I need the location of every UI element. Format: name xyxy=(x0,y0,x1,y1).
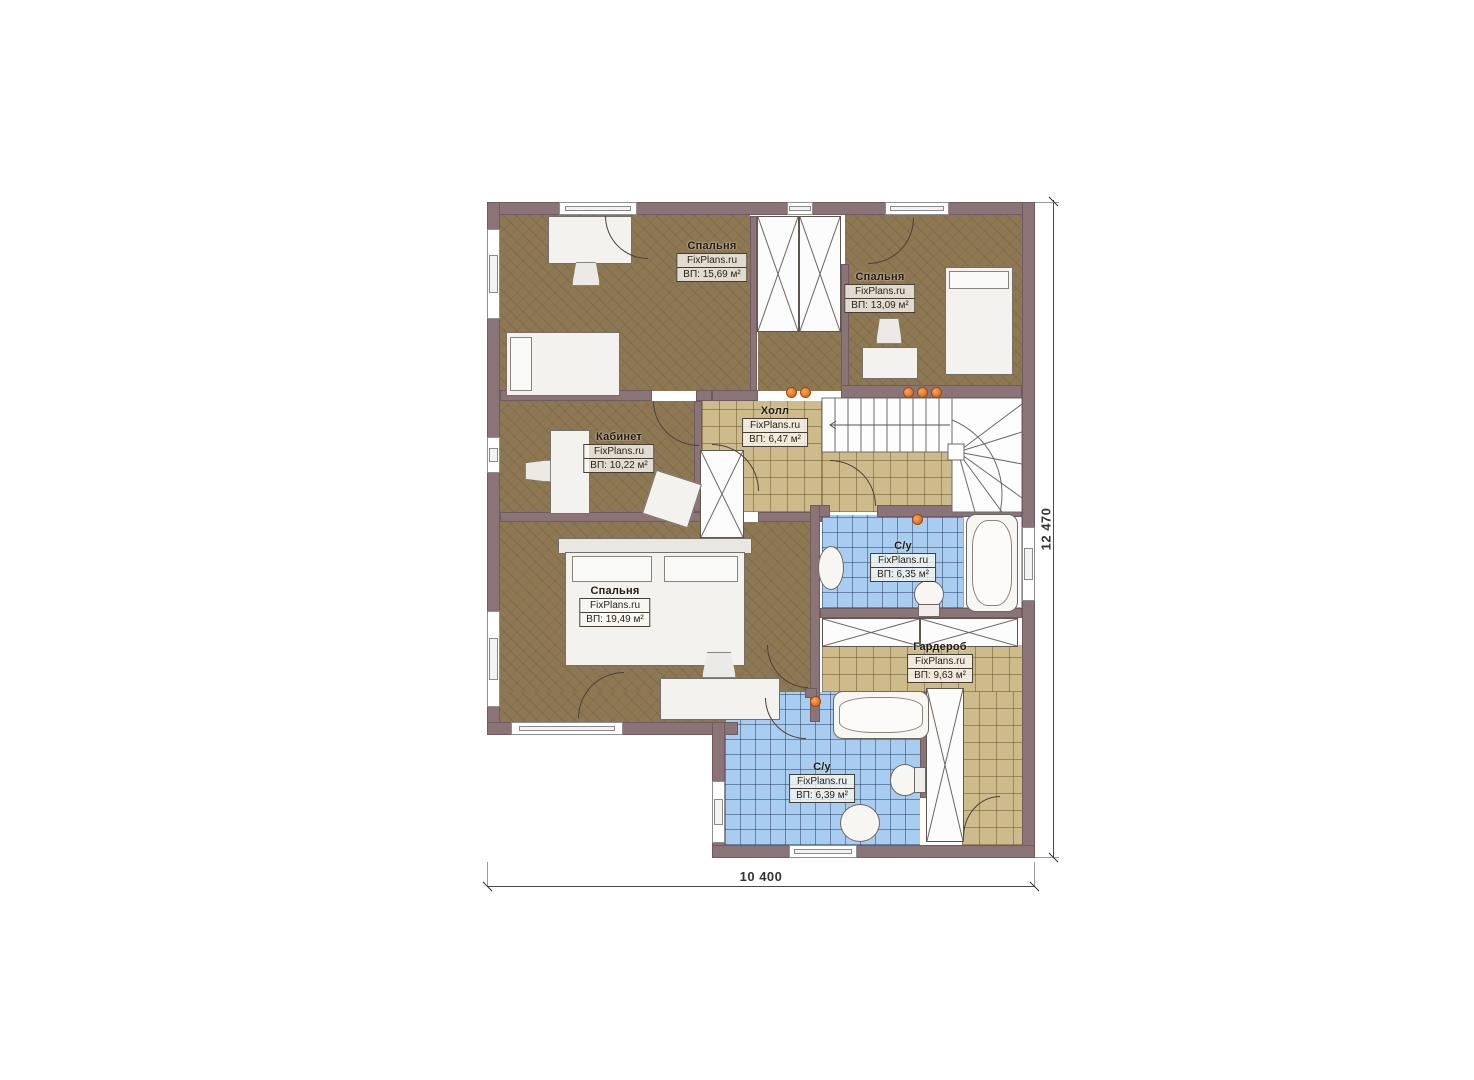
closet-x-icon xyxy=(823,619,919,646)
window-bottom-bedroom3 xyxy=(512,723,622,734)
room-name: Спальня xyxy=(844,271,915,283)
room-label-box: FixPlans.ru ВП: 13,09 м² xyxy=(844,284,915,313)
chair-bedroom2 xyxy=(876,318,902,344)
window-left-bedroom3 xyxy=(488,612,499,706)
window-left-bedroom1 xyxy=(488,230,499,318)
room-name: Гардероб xyxy=(907,641,973,653)
dimension-value-horizontal: 10 400 xyxy=(740,869,783,884)
room-label-office: Кабинет FixPlans.ru ВП: 10,22 м² xyxy=(583,431,654,473)
room-brand: FixPlans.ru xyxy=(871,554,935,568)
window-top-bedroom2 xyxy=(886,203,948,214)
wall-exterior-bottom xyxy=(712,845,1035,858)
window-left-bathroom2 xyxy=(713,782,724,842)
room-name: Кабинет xyxy=(583,431,654,443)
room-area: ВП: 6,47 м² xyxy=(743,433,807,446)
ceiling-light-icon xyxy=(917,387,928,398)
dimension-extension xyxy=(1034,862,1035,886)
dimension-line-horizontal xyxy=(487,886,1035,887)
room-brand: FixPlans.ru xyxy=(580,599,649,613)
dresser-bedroom3 xyxy=(660,678,780,720)
room-area: ВП: 13,09 м² xyxy=(845,299,914,312)
room-name: Спальня xyxy=(676,240,747,252)
room-name: С/у xyxy=(789,761,855,773)
floor-passage xyxy=(758,332,841,391)
room-label-box: FixPlans.ru ВП: 10,22 м² xyxy=(583,444,654,473)
pillow-bedroom2 xyxy=(949,271,1009,289)
window-right-bathroom1 xyxy=(1023,528,1034,600)
room-area: ВП: 10,22 м² xyxy=(584,459,653,472)
pillow-bedroom1 xyxy=(510,337,532,391)
chair-office xyxy=(525,460,551,482)
bathtub-bathroom1 xyxy=(966,514,1018,612)
room-label-wardrobe: Гардероб FixPlans.ru ВП: 9,63 м² xyxy=(907,641,973,683)
window-bottom-bathroom2 xyxy=(790,846,856,857)
room-name: Холл xyxy=(742,405,808,417)
closet-band-left xyxy=(822,618,920,647)
room-name: С/у xyxy=(870,540,936,552)
ceiling-light-icon xyxy=(912,514,923,525)
room-label-box: FixPlans.ru ВП: 9,63 м² xyxy=(907,654,973,683)
pillow-bedroom3-right xyxy=(664,556,738,582)
ceiling-light-icon xyxy=(931,387,942,398)
room-brand: FixPlans.ru xyxy=(908,655,972,669)
room-area: ВП: 19,49 м² xyxy=(580,613,649,626)
room-area: ВП: 6,39 м² xyxy=(790,789,854,802)
chair-bedroom1 xyxy=(572,262,600,286)
floor-stairs-run xyxy=(822,398,952,452)
ceiling-light-icon xyxy=(786,387,797,398)
room-area: ВП: 15,69 м² xyxy=(677,268,746,281)
pillow-bedroom3-left xyxy=(572,556,652,582)
toilet-tank-bathroom2 xyxy=(914,767,926,793)
window-left-office xyxy=(488,438,499,472)
window-top-bedroom1 xyxy=(560,203,636,214)
closet-x-icon xyxy=(927,689,963,841)
ceiling-light-icon xyxy=(903,387,914,398)
room-brand: FixPlans.ru xyxy=(677,254,746,268)
room-brand: FixPlans.ru xyxy=(790,775,854,789)
ceiling-light-icon xyxy=(810,696,821,707)
closet-x-icon xyxy=(800,217,840,331)
closet-between-bedrooms-right xyxy=(799,216,841,332)
closet-wardrobe xyxy=(926,688,964,842)
room-label-bathroom-1: С/у FixPlans.ru ВП: 6,35 м² xyxy=(870,540,936,582)
room-label-bedroom-3: Спальня FixPlans.ru ВП: 19,49 м² xyxy=(579,585,650,627)
room-label-bedroom-1: Спальня FixPlans.ru ВП: 15,69 м² xyxy=(676,240,747,282)
dimension-extension xyxy=(487,862,488,886)
ceiling-light-icon xyxy=(800,387,811,398)
room-area: ВП: 6,35 м² xyxy=(871,568,935,581)
sink-bathroom1 xyxy=(818,546,844,590)
window-top-middle xyxy=(788,203,812,214)
wall-bedroom1-bottom-b xyxy=(696,390,712,401)
room-name: Спальня xyxy=(579,585,650,597)
room-label-bedroom-2: Спальня FixPlans.ru ВП: 13,09 м² xyxy=(844,271,915,313)
chair-bedroom3 xyxy=(702,652,736,678)
wall-closet-left xyxy=(750,216,757,392)
floor-stairs-winder xyxy=(952,398,1022,512)
toilet-tank-bathroom1 xyxy=(918,604,940,617)
room-label-box: FixPlans.ru ВП: 15,69 м² xyxy=(676,253,747,282)
desk-bedroom2 xyxy=(862,347,918,379)
room-label-box: FixPlans.ru ВП: 19,49 м² xyxy=(579,598,650,627)
closet-x-icon xyxy=(758,217,798,331)
sink-bathroom2 xyxy=(840,804,880,842)
room-brand: FixPlans.ru xyxy=(845,285,914,299)
closet-between-bedrooms-left xyxy=(757,216,799,332)
room-label-box: FixPlans.ru ВП: 6,47 м² xyxy=(742,418,808,447)
wall-hall-top xyxy=(712,390,758,401)
room-brand: FixPlans.ru xyxy=(584,445,653,459)
room-brand: FixPlans.ru xyxy=(743,419,807,433)
bathtub-inner xyxy=(839,697,923,733)
floor-plan-canvas: Спальня FixPlans.ru ВП: 15,69 м² Спальня… xyxy=(0,0,1474,1080)
bathtub-inner xyxy=(972,520,1012,606)
room-label-hall: Холл FixPlans.ru ВП: 6,47 м² xyxy=(742,405,808,447)
dimension-value-vertical: 12 470 xyxy=(1039,508,1054,551)
room-area: ВП: 9,63 м² xyxy=(908,669,972,682)
bathtub-bathroom2 xyxy=(833,691,929,739)
room-label-box: FixPlans.ru ВП: 6,39 м² xyxy=(789,774,855,803)
room-label-box: FixPlans.ru ВП: 6,35 м² xyxy=(870,553,936,582)
room-label-bathroom-2: С/у FixPlans.ru ВП: 6,39 м² xyxy=(789,761,855,803)
